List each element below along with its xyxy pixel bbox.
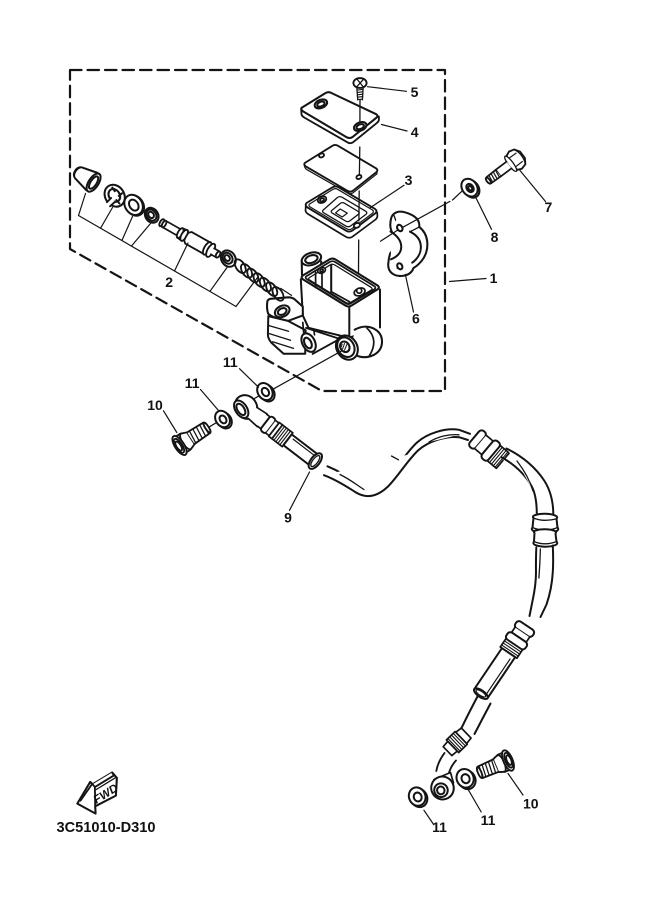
svg-text:10: 10 <box>523 795 539 811</box>
svg-text:2: 2 <box>165 274 173 290</box>
svg-text:1: 1 <box>490 270 498 286</box>
svg-text:6: 6 <box>412 311 420 327</box>
svg-text:7: 7 <box>545 199 553 215</box>
svg-text:11: 11 <box>223 354 238 370</box>
svg-text:11: 11 <box>185 375 200 391</box>
svg-text:4: 4 <box>411 124 419 140</box>
svg-text:11: 11 <box>481 812 496 828</box>
svg-text:5: 5 <box>411 84 419 100</box>
svg-text:9: 9 <box>284 509 292 525</box>
svg-text:3: 3 <box>405 172 413 188</box>
svg-text:11: 11 <box>432 819 447 835</box>
svg-text:8: 8 <box>491 229 499 245</box>
svg-text:10: 10 <box>147 397 163 413</box>
svg-text:3C51010-D310: 3C51010-D310 <box>57 820 156 836</box>
